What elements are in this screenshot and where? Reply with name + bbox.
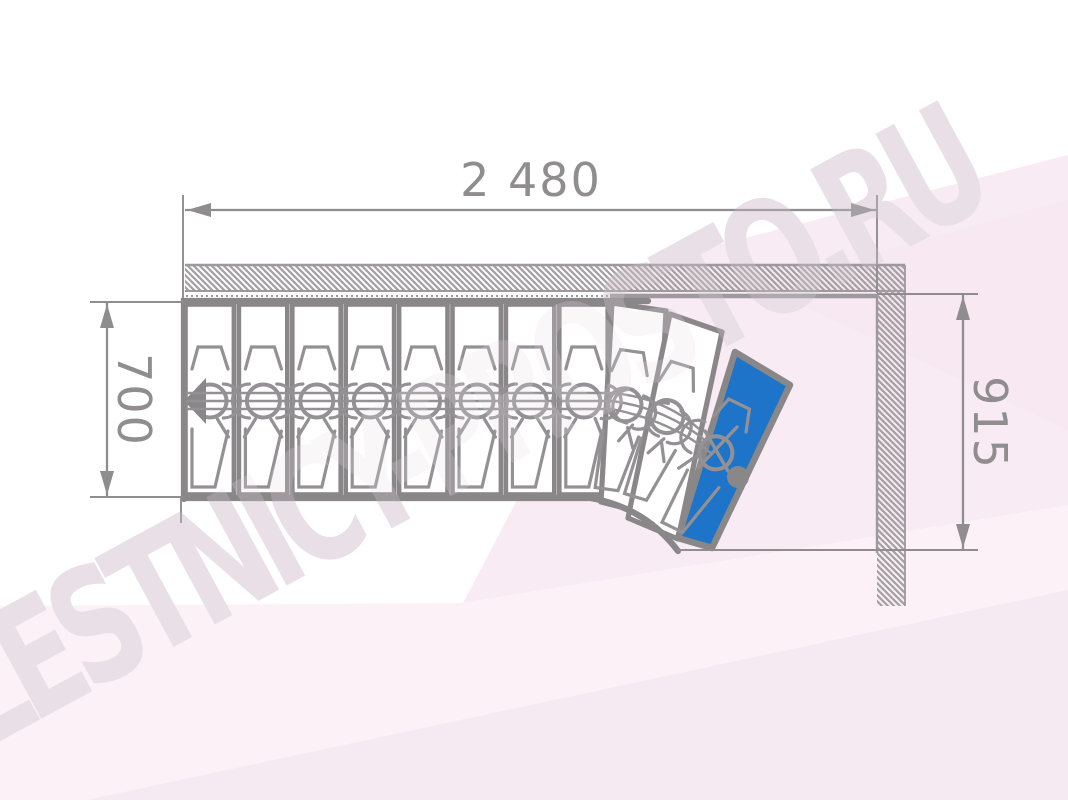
dimension-label-exit-offset: 915 — [963, 376, 1017, 470]
stair-plan-drawing: LESTNICY-PROSTO.RU — [0, 0, 1068, 800]
right-wall — [877, 265, 905, 606]
dimension-label-total-run: 2 480 — [460, 153, 602, 207]
right-wall-hatch — [877, 291, 905, 606]
dimension-label-stair-width: 700 — [107, 353, 161, 447]
drawing-canvas: LESTNICY-PROSTO.RU — [0, 0, 1068, 800]
walk-line-end-dot — [727, 466, 749, 488]
dimension-stair-width: 700 — [90, 302, 184, 497]
